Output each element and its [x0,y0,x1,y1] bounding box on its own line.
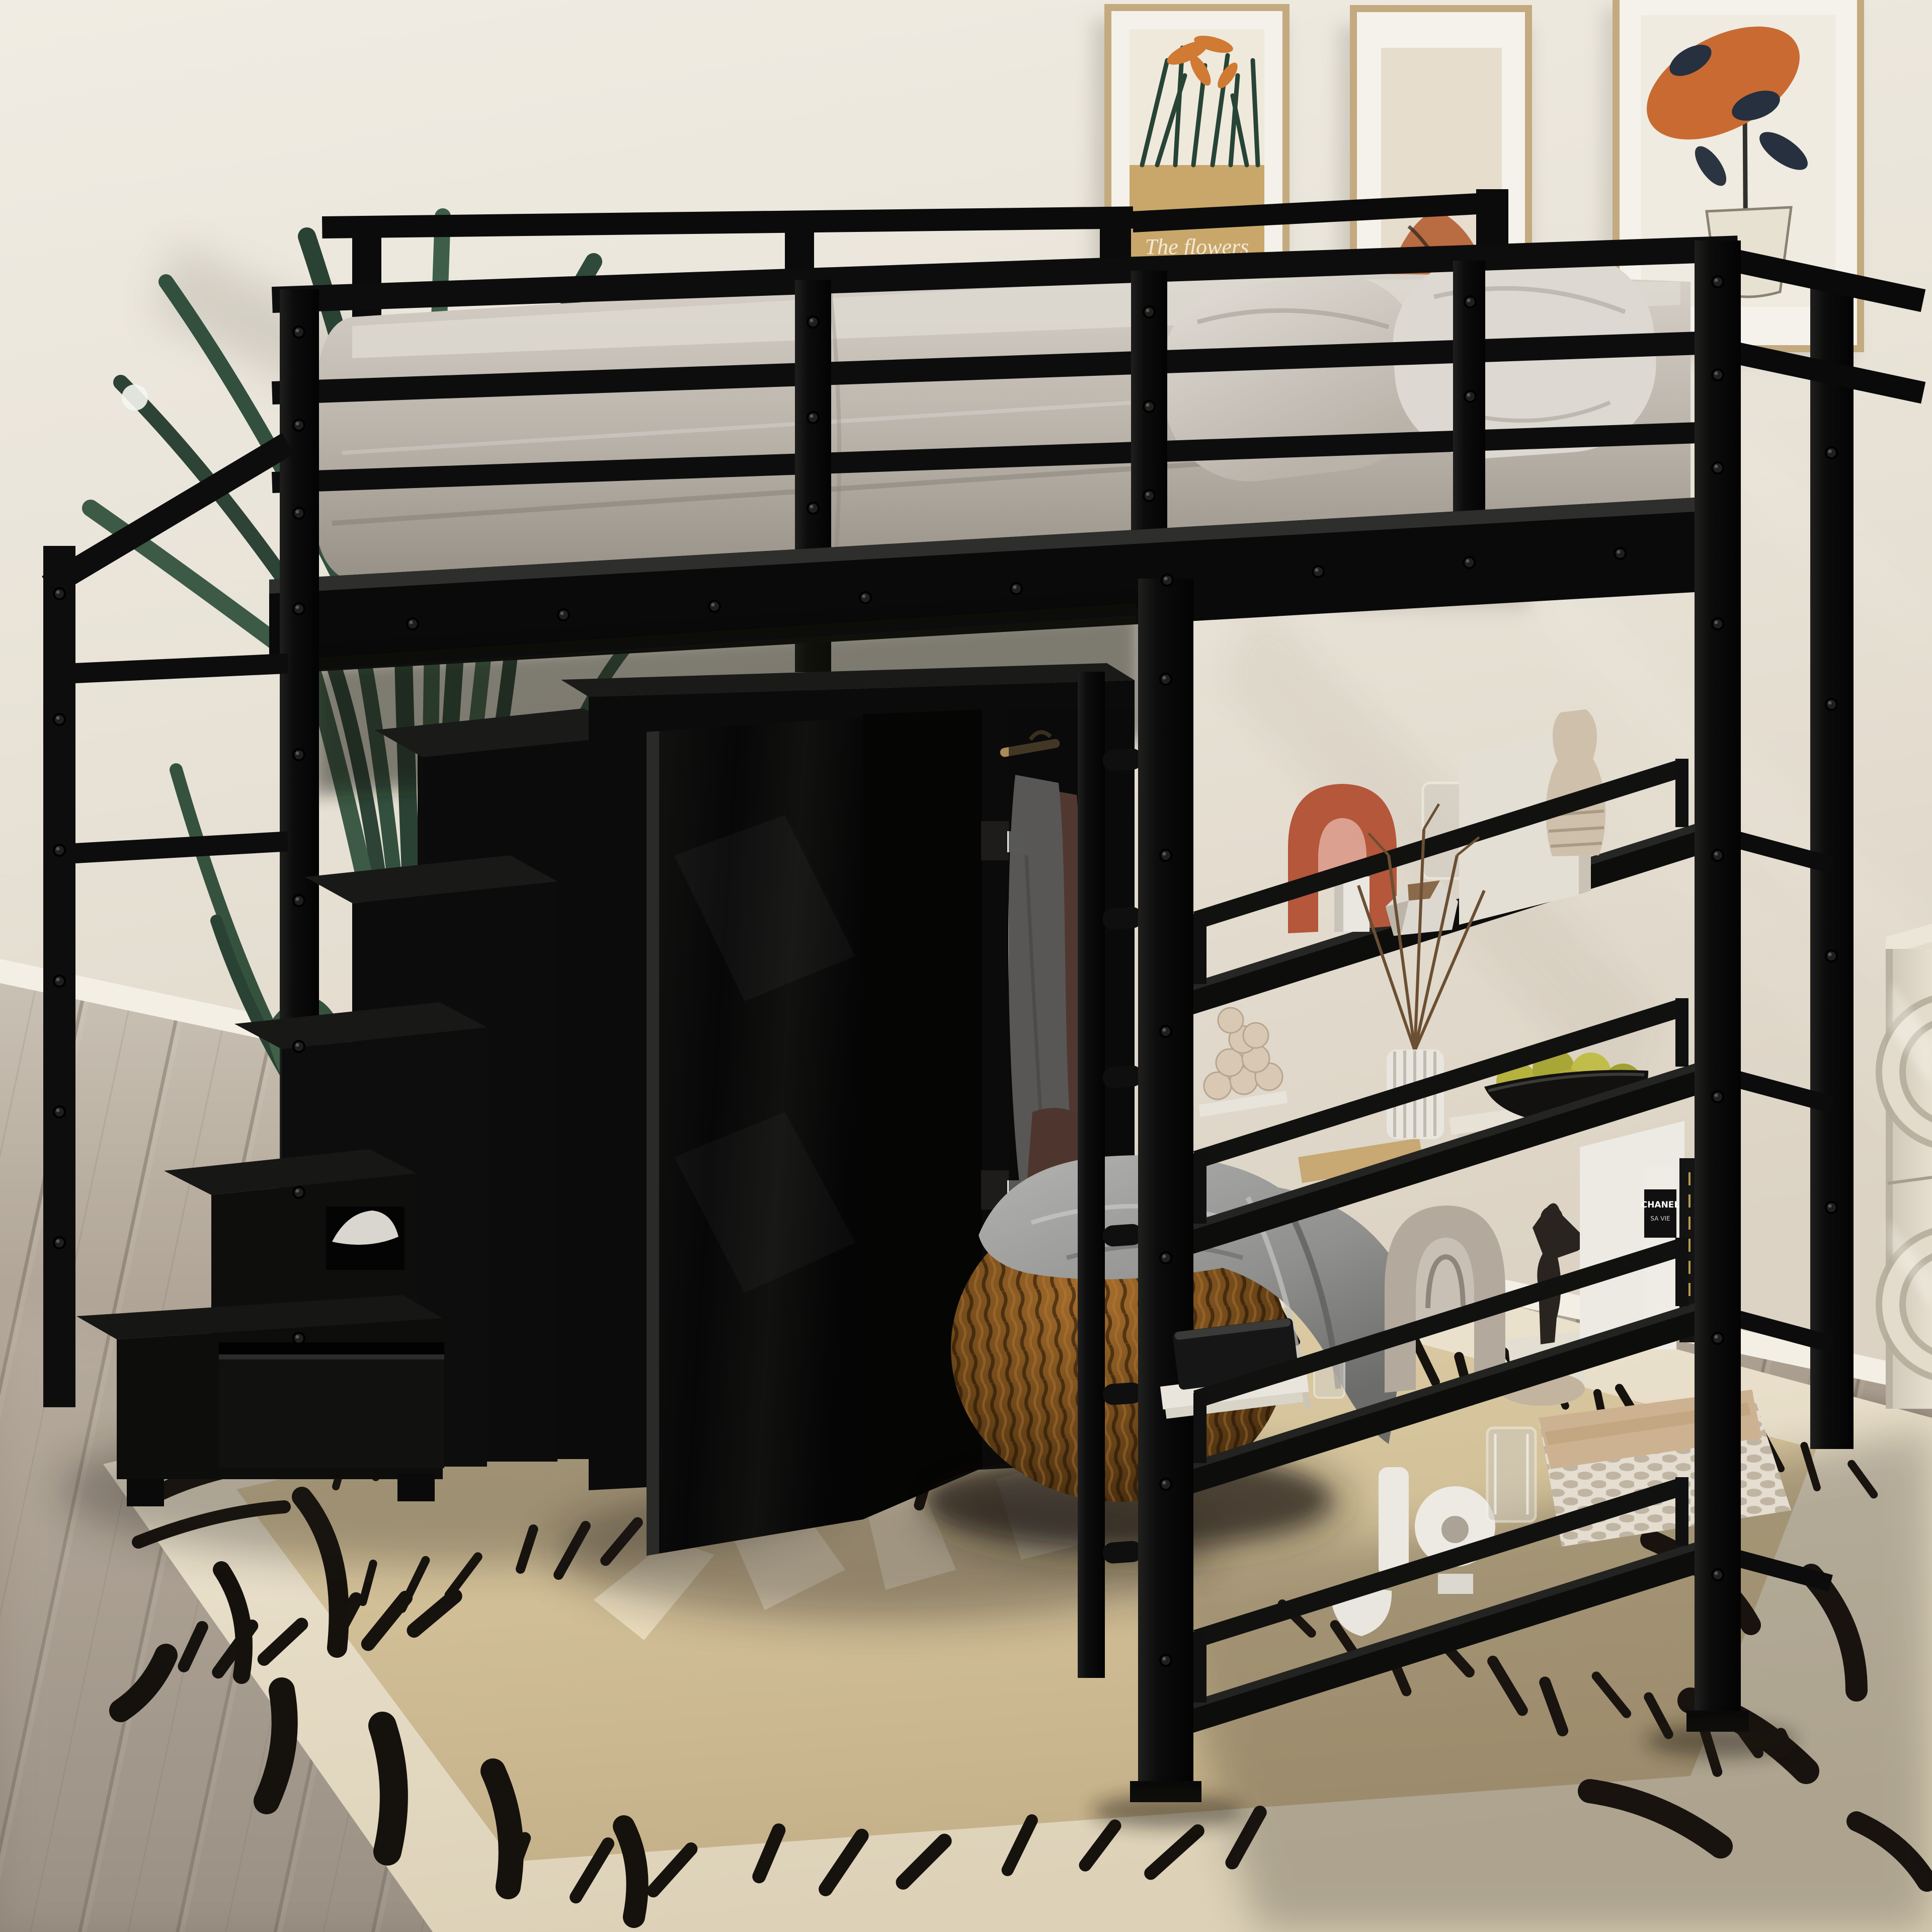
rivet-highlight [1715,1094,1718,1097]
scene-canvas: The flowers [0,0,1932,1932]
beige-vase [1546,709,1606,856]
rivet [709,601,720,612]
ladder-rung [1102,906,1144,930]
rivet-highlight [56,591,60,594]
rivet-highlight [711,603,715,607]
rivet [1162,575,1173,586]
rivet-highlight [296,606,299,609]
rivet-highlight [1013,586,1017,589]
rivet [1712,1569,1723,1580]
rivet-highlight [1715,279,1718,282]
ladder-rung [1102,1382,1144,1405]
rivet [1465,296,1476,307]
cream-dresser [1886,924,1932,1409]
rivet-highlight [1828,953,1832,956]
rivet [293,420,304,431]
rivet [54,976,65,987]
rivet-highlight [296,510,299,514]
rivet [54,1237,65,1248]
rivet-highlight [1828,701,1832,705]
rivet-highlight [296,752,299,755]
rivet-highlight [56,716,60,720]
rivet-highlight [810,319,814,323]
rivet [407,618,418,629]
rivet [54,1106,65,1117]
rivet-highlight [1715,1572,1718,1575]
rivet-highlight [1146,493,1150,496]
rivet [1160,674,1171,685]
rivet-highlight [1828,1204,1832,1208]
rivet [1615,548,1626,559]
rivet [1826,1202,1837,1213]
rivet-highlight [1466,559,1470,563]
rivet [293,1333,304,1344]
rivet-highlight [296,422,299,426]
ladder-rung [1102,748,1144,771]
rivet [1712,369,1723,380]
rivet [293,508,304,519]
rivet-highlight [296,1335,299,1339]
rivet [293,327,304,338]
rivet [293,895,304,906]
rivet-highlight [1617,550,1621,554]
rivet-highlight [1163,852,1166,856]
rivet [1011,583,1022,594]
rivet [54,714,65,725]
ladder-rung [1102,1223,1144,1247]
rivet [1160,850,1171,861]
rivet [1712,850,1723,861]
stair-drawer [219,1342,444,1468]
rivet [808,316,819,328]
rivet-highlight [1715,1335,1718,1339]
ladder-rung [1102,1540,1144,1564]
rivet-highlight [56,1109,60,1112]
magazine-title: CHANEL [1641,1200,1680,1210]
ladder-rung [1102,1065,1144,1088]
rivet [1464,557,1475,568]
rivet [1712,462,1723,473]
rivet-highlight [1146,309,1150,312]
rivet [808,503,819,514]
rivet-highlight [1163,676,1166,680]
rivet [558,609,569,620]
rivet [1160,1026,1171,1037]
rivet [1160,1655,1171,1666]
rivet-highlight [1467,299,1471,302]
bedroom-product-photo: The flowers [0,0,1932,1932]
rivet [1826,950,1837,961]
rivet-highlight [1163,1028,1166,1032]
rivet-highlight [1715,372,1718,375]
rivet [1160,1252,1171,1263]
rivet-highlight [560,612,564,615]
rivet [1144,306,1155,317]
magazine-subtitle: SA VIE [1650,1215,1670,1222]
rivet-highlight [1163,1255,1166,1258]
rivet-highlight [56,847,60,851]
rivet-highlight [862,595,866,598]
rivet [293,1187,304,1198]
rivet [1313,566,1324,577]
rivet [1465,391,1476,402]
rivet [808,412,819,423]
rivet-highlight [296,1043,299,1047]
rivet [1712,1091,1723,1102]
rivet-highlight [810,415,814,418]
rivet-highlight [810,505,814,509]
rivet-highlight [56,1240,60,1243]
rivet-highlight [296,1189,299,1193]
rivet [1712,276,1723,287]
rivet [1826,447,1837,458]
rivet [860,592,871,603]
rivet-highlight [1467,393,1471,397]
rivet [293,1041,304,1052]
rivet-highlight [296,329,299,333]
rivet [1712,618,1723,629]
rivet-highlight [1715,465,1718,468]
rivet [54,588,65,599]
rivet [54,845,65,856]
rivet [1160,1479,1171,1490]
rivet [1144,401,1155,412]
rivet-highlight [1163,1481,1166,1485]
rivet-highlight [296,898,299,901]
rivet [293,603,304,614]
rivet-highlight [1146,404,1150,407]
rivet-highlight [1715,621,1718,624]
rivet [1712,1333,1723,1344]
rivet-highlight [1315,569,1319,572]
rivet [293,749,304,760]
rivet-highlight [1164,577,1168,581]
rivet-highlight [1828,450,1832,453]
open-door [647,717,863,1556]
rivet [1144,490,1155,501]
rivet [1826,699,1837,710]
rivet-highlight [56,978,60,982]
rivet-highlight [1715,852,1718,856]
rivet-highlight [1163,1657,1166,1661]
rivet-highlight [410,621,413,624]
white-cylinder-vase [1379,1467,1409,1577]
